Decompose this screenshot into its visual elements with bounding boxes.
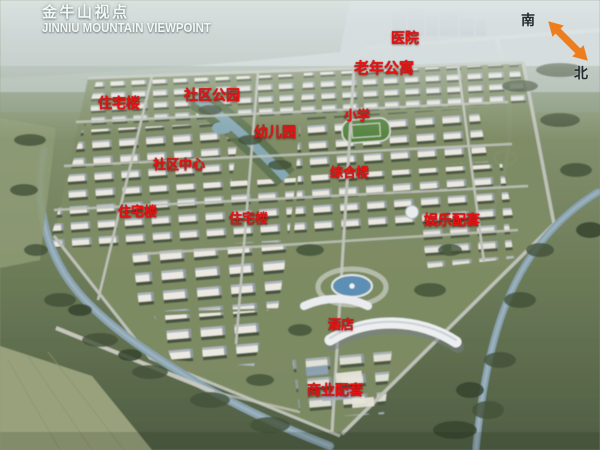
page-title: 金牛山视点 JINNIU MOUNTAIN VIEWPOINT <box>42 4 234 35</box>
map-label-entertainment-amenities: 娱乐配套 <box>424 213 480 227</box>
compass-north-label: 北 <box>574 66 588 80</box>
map-label-kindergarten: 幼儿园 <box>254 125 296 139</box>
map-label-hotel: 酒店 <box>328 318 354 331</box>
aerial-rendering <box>0 0 600 450</box>
map-label-senior-apartments: 老年公寓 <box>354 61 414 76</box>
compass-south-label: 南 <box>521 13 535 27</box>
map-label-primary-school: 小学 <box>344 109 370 122</box>
title-chinese: 金牛山视点 <box>42 4 234 21</box>
map-label-complex-building: 综合楼 <box>330 166 369 179</box>
map-label-commercial-amenities: 商业配套 <box>307 383 363 397</box>
title-english: JINNIU MOUNTAIN VIEWPOINT <box>42 21 211 35</box>
map-label-residential-1: 住宅楼 <box>98 96 140 110</box>
map-label-community-center: 社区中心 <box>153 158 205 171</box>
map-label-hospital: 医院 <box>391 31 419 45</box>
map-label-residential-3: 住宅楼 <box>229 212 268 225</box>
map-label-residential-2: 住宅楼 <box>118 205 157 218</box>
aerial-masterplan-view: 金牛山视点 JINNIU MOUNTAIN VIEWPOINT 南 北 医院 老… <box>0 0 600 450</box>
map-label-community-park: 社区公园 <box>184 88 240 102</box>
